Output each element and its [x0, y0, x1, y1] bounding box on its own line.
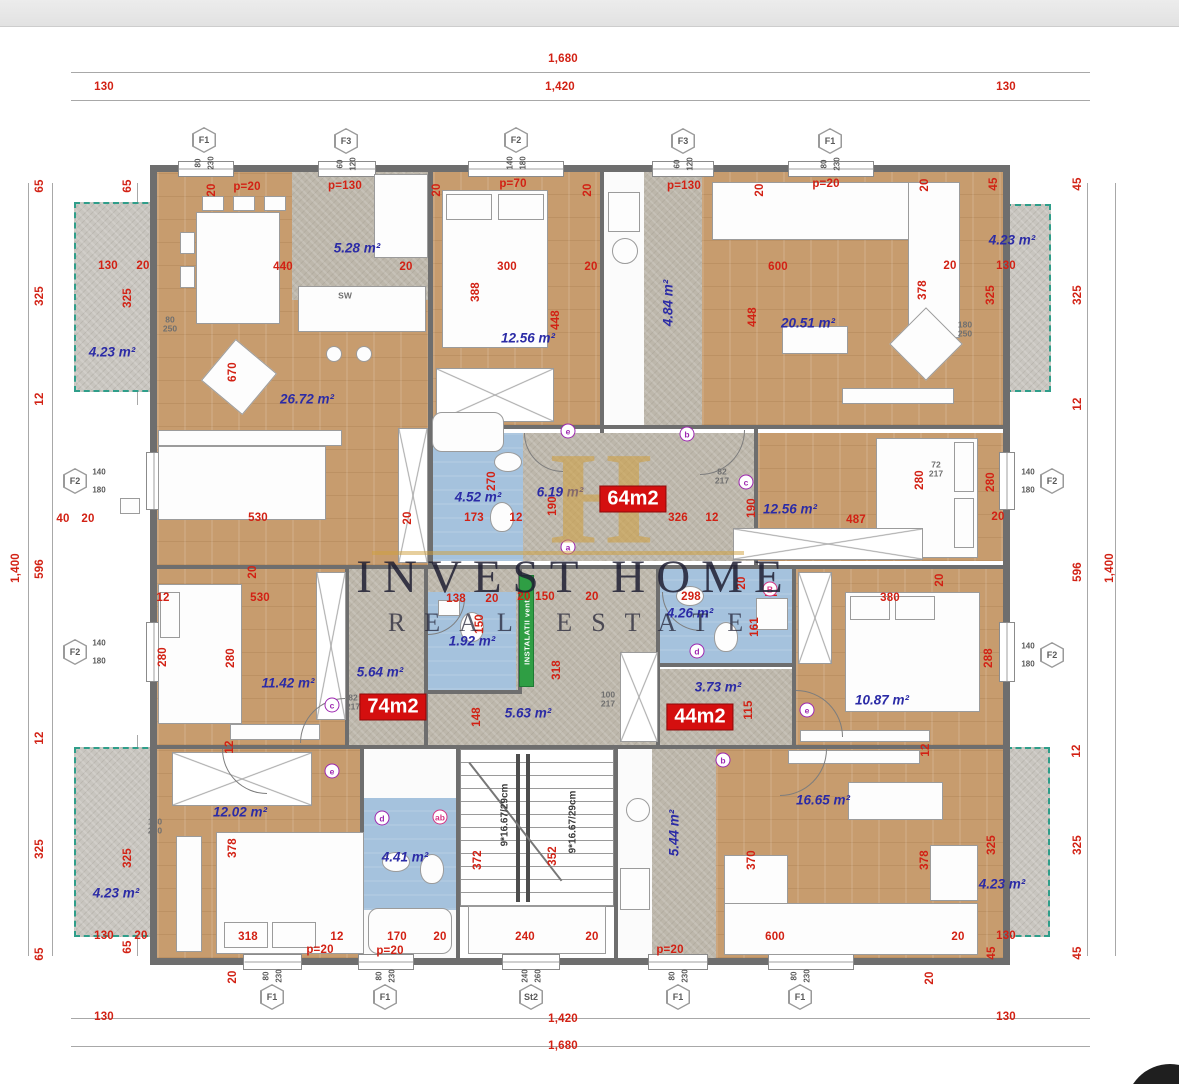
apartment-area-badge: 64m2	[599, 486, 666, 513]
apartment-area-badge: 74m2	[359, 694, 426, 721]
apartment-badges-layer: 64m274m244m2	[0, 0, 1179, 1084]
floor-plan-screenshot: INSTALATII vent. 1,6801301,4201301301,42…	[0, 0, 1179, 1084]
apartment-area-badge: 44m2	[666, 704, 733, 731]
